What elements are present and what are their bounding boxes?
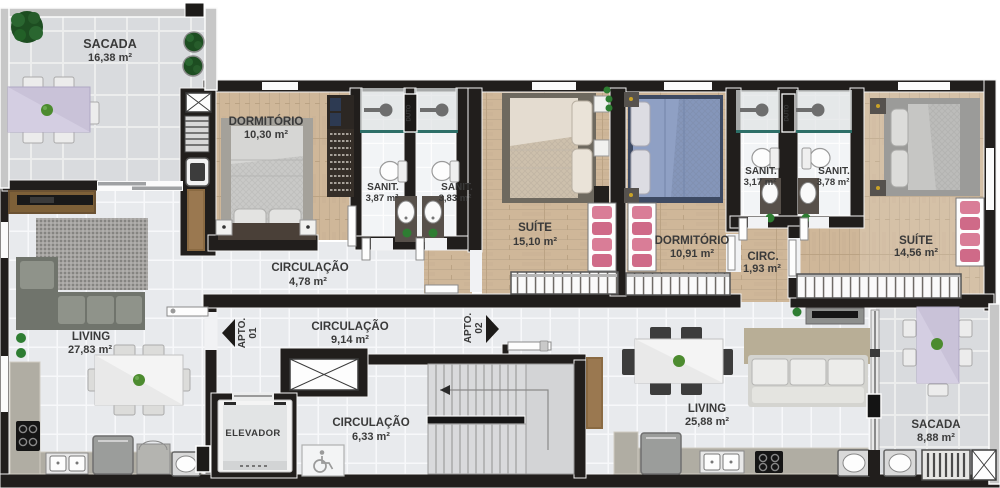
svg-text:10,91 m²: 10,91 m² xyxy=(670,248,714,260)
svg-text:APTO.: APTO. xyxy=(237,318,248,349)
svg-text:SUÍTE: SUÍTE xyxy=(518,221,552,234)
svg-text:01: 01 xyxy=(248,327,259,339)
svg-text:14,56 m²: 14,56 m² xyxy=(894,247,938,259)
svg-text:DORMITÓRIO: DORMITÓRIO xyxy=(655,234,730,247)
svg-text:LIVING: LIVING xyxy=(72,331,110,343)
svg-text:LIVING: LIVING xyxy=(688,403,726,415)
svg-text:16,38 m²: 16,38 m² xyxy=(88,52,132,64)
svg-text:SUÍTE: SUÍTE xyxy=(899,234,933,247)
svg-text:SANIT.: SANIT. xyxy=(745,166,777,177)
svg-text:1,93 m²: 1,93 m² xyxy=(743,263,781,275)
svg-text:CIRCULAÇÃO: CIRCULAÇÃO xyxy=(311,320,388,333)
svg-text:4,78 m²: 4,78 m² xyxy=(289,276,327,288)
svg-text:CIRC.: CIRC. xyxy=(747,251,778,263)
svg-text:CIRCULAÇÃO: CIRCULAÇÃO xyxy=(271,261,348,274)
svg-text:25,88 m²: 25,88 m² xyxy=(685,416,729,428)
svg-text:3,87 m²: 3,87 m² xyxy=(366,193,399,204)
svg-text:15,10 m²: 15,10 m² xyxy=(513,236,557,248)
svg-text:SANIT.: SANIT. xyxy=(818,166,850,177)
svg-text:02: 02 xyxy=(474,322,485,334)
svg-text:3,78 m²: 3,78 m² xyxy=(817,177,850,188)
svg-text:SANIT.: SANIT. xyxy=(441,182,473,193)
svg-text:DORMITÓRIO: DORMITÓRIO xyxy=(229,115,304,128)
svg-text:APTO.: APTO. xyxy=(463,313,474,344)
svg-text:DUTO: DUTO xyxy=(407,104,413,121)
svg-text:CIRCULAÇÃO: CIRCULAÇÃO xyxy=(332,416,409,429)
svg-text:27,83 m²: 27,83 m² xyxy=(68,344,112,356)
svg-text:3,17 m²: 3,17 m² xyxy=(744,177,777,188)
svg-text:9,14 m²: 9,14 m² xyxy=(331,334,369,346)
svg-text:SACADA: SACADA xyxy=(83,37,136,51)
svg-text:ELEVADOR: ELEVADOR xyxy=(225,428,280,439)
svg-text:SACADA: SACADA xyxy=(911,419,960,431)
svg-text:3,83 m²: 3,83 m² xyxy=(439,193,472,204)
svg-text:10,30 m²: 10,30 m² xyxy=(244,129,288,141)
svg-text:8,88 m²: 8,88 m² xyxy=(917,432,955,444)
svg-text:SANIT.: SANIT. xyxy=(367,182,399,193)
svg-text:6,33 m²: 6,33 m² xyxy=(352,431,390,443)
svg-text:DUTO: DUTO xyxy=(785,104,791,121)
